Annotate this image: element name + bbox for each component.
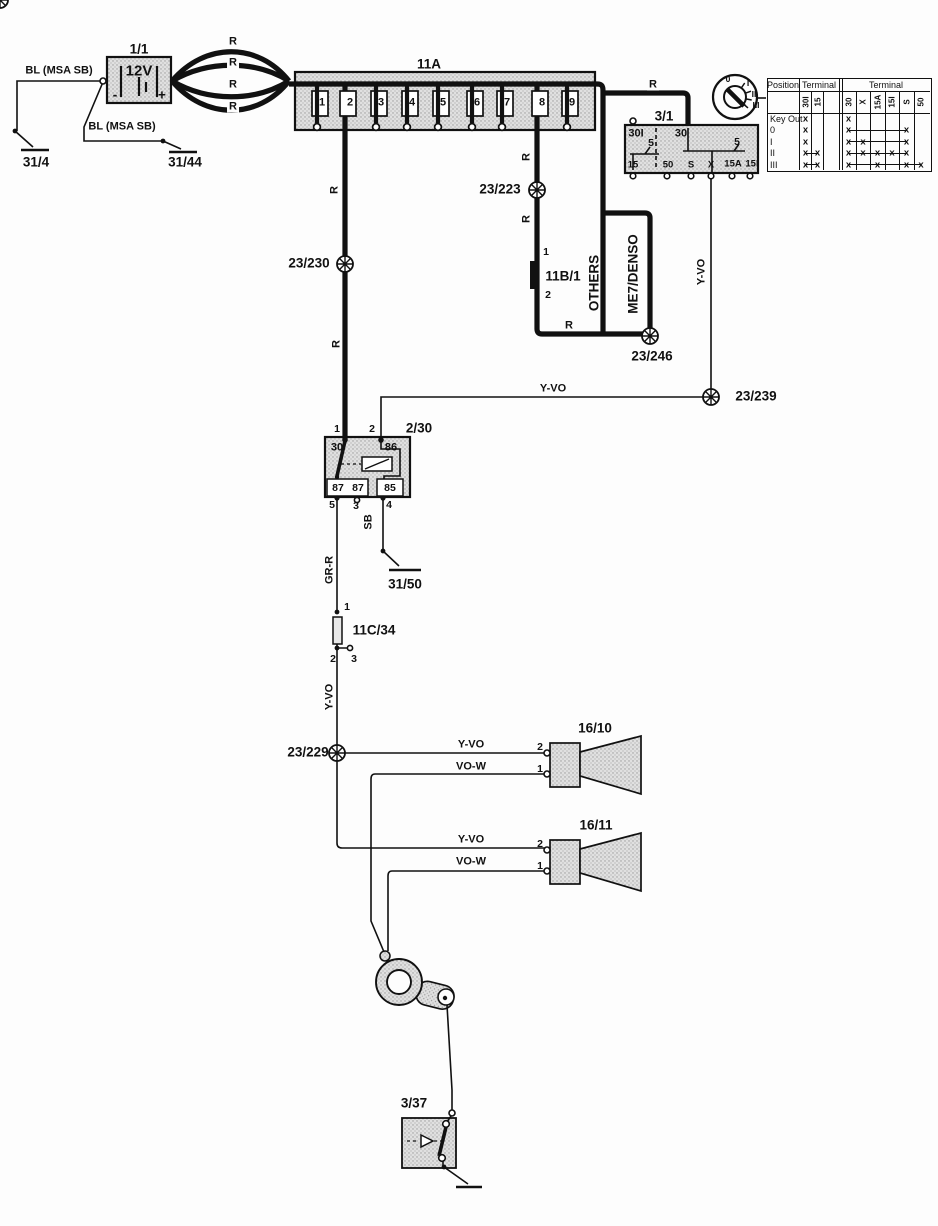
fuse-6: 6 [474, 98, 480, 109]
inline-connector-bar [530, 261, 535, 289]
vow-wire-horn2 [388, 871, 547, 951]
horn2-pin1: 1 [537, 861, 543, 872]
ground-label-31-50: 31/50 [388, 577, 422, 591]
ign-terminal-15i: 15I [745, 159, 758, 169]
battery-minus: - [113, 88, 118, 102]
connector-23-246 [642, 328, 658, 344]
inline-fuse-body [333, 617, 342, 644]
connector-label-23-223: 23/223 [479, 182, 520, 196]
table-mark: x [815, 148, 820, 159]
table-col-15: 15 [813, 98, 822, 107]
connector-23-223 [529, 182, 545, 198]
table-mark: x [846, 148, 851, 159]
key-pos-ii: II [752, 90, 757, 99]
relay-pin5: 5 [329, 500, 335, 511]
horn1-id: 16/10 [578, 721, 612, 735]
inline-fuse-pin3: 3 [351, 654, 357, 665]
ign-terminal-50: 50 [663, 160, 674, 170]
ignition-feed-wire [603, 93, 688, 126]
table-row-label: 0 [770, 125, 775, 135]
fuse-output-wire [337, 644, 348, 745]
table-mark: x [875, 148, 880, 159]
table-mark: x [803, 114, 808, 125]
table-mark: x [815, 159, 820, 170]
fuse-8: 8 [539, 98, 545, 109]
table-mark: x [904, 148, 909, 159]
fuse-7: 7 [504, 98, 510, 109]
wire-label-r-bottom: R [565, 321, 573, 332]
ign-terminal-30: 30 [675, 129, 687, 140]
ign-terminal-30i: 30I [628, 129, 643, 140]
table-mark: x [846, 159, 851, 170]
table-col-15a: 15A [873, 95, 882, 110]
relay-pin3: 3 [353, 501, 359, 512]
wire-label-r-f8a: R [522, 153, 533, 161]
wire-label-sb: SB [364, 514, 375, 529]
ign-amp-left: 5 [648, 138, 654, 149]
switch-arms [337, 441, 446, 1156]
horn-switch-id: 3/37 [401, 1096, 427, 1110]
table-col-30: 30 [844, 98, 853, 107]
horn2-pin2: 2 [537, 839, 543, 850]
relay-pin1: 1 [334, 424, 340, 435]
table-header-terminal-right: Terminal [869, 80, 903, 90]
ign-terminal-s: S [688, 160, 694, 170]
relay-terminal-85: 85 [384, 483, 396, 494]
fuse-5: 5 [440, 98, 446, 109]
relay-pin2: 2 [369, 424, 375, 435]
relay-id: 2/30 [406, 421, 432, 435]
fuse-box-id: 11A [417, 57, 441, 71]
wire-label-r-f2b: R [332, 340, 343, 348]
wiring-diagram-page: BL (MSA SB) 31/4 BL (MSA SB) 31/44 1/1 1… [0, 0, 938, 1226]
horn2-id: 16/11 [579, 818, 612, 832]
connector-label-23-229: 23/229 [287, 745, 328, 759]
table-mark: x [918, 159, 923, 170]
table-row-label: Key Out [770, 114, 803, 124]
table-mark: x [860, 136, 865, 147]
fuse-1: 1 [319, 98, 325, 109]
relay-terminal-87b: 87 [352, 483, 364, 494]
table-mark: x [846, 136, 851, 147]
wire-label-yvo-horn1: Y-VO [458, 740, 484, 751]
wire-label-yvo-low: Y-VO [325, 684, 336, 710]
table-col-15i: 15I [888, 96, 897, 107]
horn1-trumpet [580, 736, 641, 794]
table-row-label: I [770, 137, 773, 147]
key-pos-0: 0 [726, 75, 731, 84]
table-mark: x [846, 125, 851, 136]
key-pos-iii: III [752, 101, 759, 110]
clock-spring-nub [380, 951, 390, 961]
ecu-path-me7-denso: ME7/DENSO [626, 234, 640, 314]
table-mark: x [904, 125, 909, 136]
connector-label-23-230: 23/230 [288, 256, 329, 270]
battery-plus: + [158, 88, 166, 102]
horn2-box [550, 840, 580, 884]
horn1-pin1: 1 [537, 764, 543, 775]
wire-label-r-ign: R [647, 80, 659, 91]
fuse-9: 9 [569, 98, 575, 109]
table-mark: x [803, 159, 808, 170]
table-header-position: Position [767, 80, 799, 90]
table-mark: x [846, 114, 851, 125]
connector-label-23-246: 23/246 [631, 349, 672, 363]
table-connection-line [849, 164, 922, 165]
table-mark: x [889, 148, 894, 159]
wire-label-yvo-horizontal: Y-VO [540, 384, 566, 395]
connector-symbol [0, 0, 8, 8]
wire-label-r-2: R [227, 58, 239, 69]
table-row-label: III [770, 160, 778, 170]
table-col-x: X [859, 99, 868, 104]
table-col-50: 50 [917, 98, 926, 107]
ground-label-31-4: 31/4 [23, 155, 49, 169]
clockspring-to-switch-wire [447, 1005, 452, 1111]
wire-label-grr: GR-R [325, 556, 336, 584]
wire-label-r-1: R [227, 37, 239, 48]
inline-fuse-id: 11C/34 [353, 623, 396, 637]
wire-label-vow-horn1: VO-W [456, 762, 486, 773]
clock-spring [376, 951, 456, 1011]
connector-23-230 [337, 256, 353, 272]
horn1-box [550, 743, 580, 787]
table-mark: x [803, 125, 808, 136]
table-mark: x [803, 136, 808, 147]
battery-id: 1/1 [130, 42, 149, 56]
ground-label-31-44: 31/44 [168, 155, 202, 169]
wire-label-yvo-horn2: Y-VO [458, 835, 484, 846]
wiring-diagram-canvas [0, 0, 938, 1226]
connector-23-239 [703, 389, 719, 405]
table-mark: x [803, 148, 808, 159]
wire-label-vow-horn2: VO-W [456, 857, 486, 868]
relay-terminal-86: 86 [385, 443, 397, 454]
inline-connector-id: 11B/1 [545, 269, 580, 283]
wire-label-bl-1: BL (MSA SB) [25, 66, 92, 77]
battery-voltage: 12V [126, 64, 153, 79]
wire-label-r-f8b: R [522, 215, 533, 223]
fuse-2: 2 [347, 98, 353, 109]
ecu-path-others: OTHERS [587, 255, 601, 311]
table-mark: x [904, 136, 909, 147]
junction-dots [13, 129, 447, 1170]
ign-terminal-15a: 15A [724, 159, 741, 169]
relay-pin4: 4 [386, 500, 392, 511]
ign-terminal-x: X [708, 160, 714, 170]
table-connection-line [849, 130, 907, 131]
inline-fuse-pin2: 2 [330, 654, 336, 665]
inline-fuse-pin1: 1 [344, 602, 350, 613]
connector-label-23-239: 23/239 [735, 389, 776, 403]
connector-23-229 [329, 745, 345, 761]
fuse-4: 4 [409, 98, 415, 109]
ignition-switch-id: 3/1 [655, 109, 674, 123]
wire-label-r-f2a: R [330, 186, 341, 194]
wire-label-bl-2: BL (MSA SB) [88, 122, 155, 133]
sub-boxes [327, 261, 535, 1147]
wire-label-r-3: R [227, 80, 239, 91]
ignition-key-icon [713, 75, 757, 119]
inline-connector-pin2: 2 [545, 290, 551, 301]
table-mark: x [860, 148, 865, 159]
table-row-label: II [770, 148, 775, 158]
inline-connector-pin1: 1 [543, 247, 549, 258]
table-mark: x [904, 159, 909, 170]
wire-label-yvo-right: Y-VO [697, 259, 708, 285]
relay-terminal-87a: 87 [332, 483, 344, 494]
fuse-3: 3 [378, 98, 384, 109]
horn1-pin2: 2 [537, 742, 543, 753]
horn2-trumpet [580, 833, 641, 891]
ign-terminal-15: 15 [628, 160, 639, 170]
table-col-s: S [902, 99, 911, 104]
wire-label-r-4: R [227, 102, 239, 113]
relay-terminal-30: 30 [331, 443, 343, 454]
ground-symbols [21, 150, 482, 1187]
key-pos-i: I [747, 79, 749, 88]
ign-amp-right: 5 [734, 137, 740, 148]
table-header-terminal-left: Terminal [802, 80, 836, 90]
table-connection-line [849, 141, 907, 142]
table-col-30i: 30I [801, 96, 810, 107]
table-mark: x [875, 159, 880, 170]
